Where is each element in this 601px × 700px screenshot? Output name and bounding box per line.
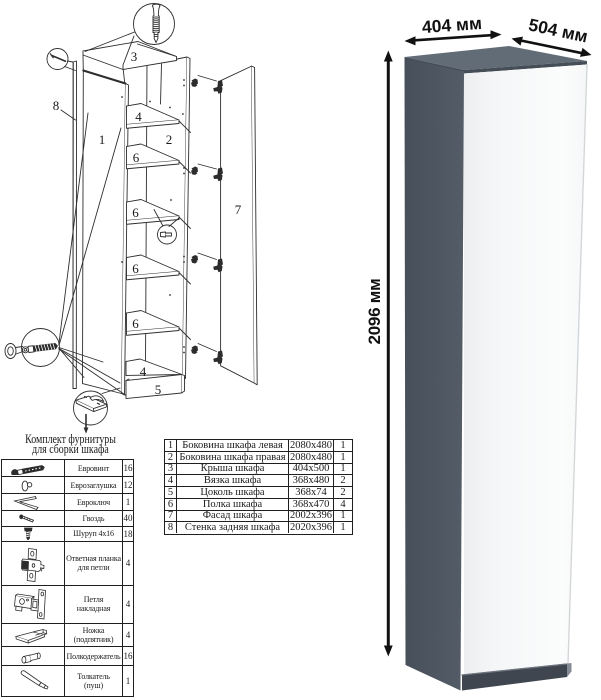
- svg-text:2: 2: [166, 132, 173, 147]
- svg-text:8: 8: [53, 98, 60, 113]
- svg-text:5: 5: [155, 382, 162, 397]
- svg-text:2096 мм: 2096 мм: [365, 279, 384, 345]
- svg-text:4: 4: [140, 364, 147, 379]
- svg-text:404 мм: 404 мм: [421, 13, 482, 37]
- svg-text:6: 6: [132, 205, 139, 220]
- svg-text:3: 3: [131, 49, 138, 64]
- svg-text:504 мм: 504 мм: [527, 15, 590, 47]
- svg-text:4: 4: [135, 109, 142, 124]
- svg-text:7: 7: [235, 202, 242, 217]
- svg-text:6: 6: [132, 261, 139, 276]
- svg-text:6: 6: [133, 150, 140, 165]
- svg-text:6: 6: [132, 316, 139, 331]
- svg-text:1: 1: [99, 132, 106, 147]
